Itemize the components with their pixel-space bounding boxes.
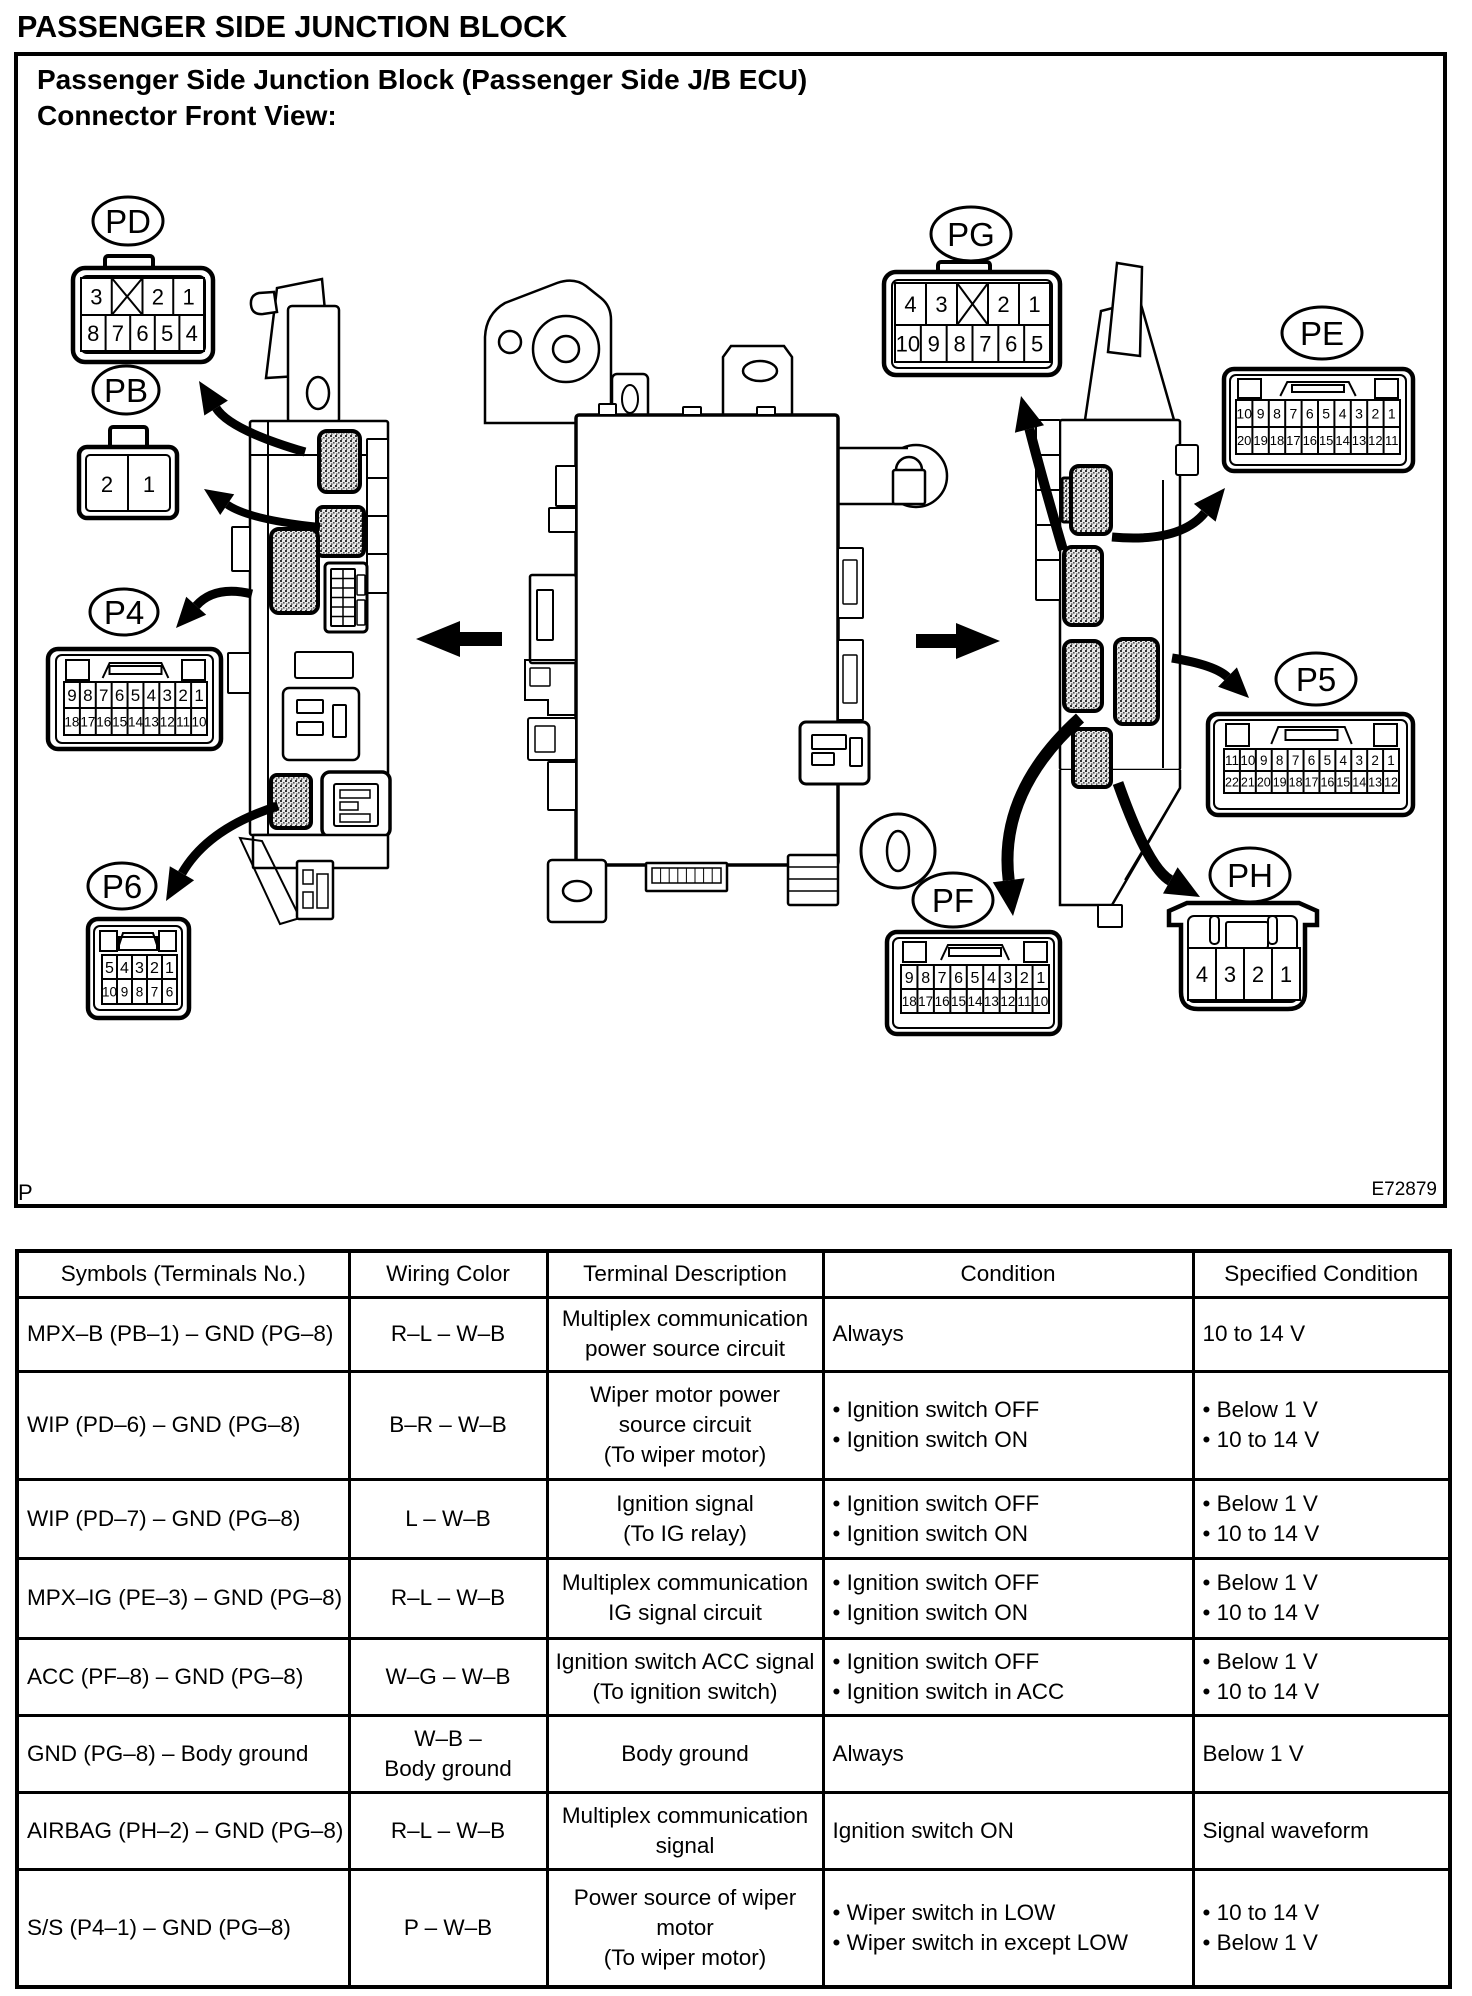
svg-text:PH: PH	[1227, 857, 1273, 894]
svg-text:2: 2	[1252, 962, 1264, 987]
svg-text:9: 9	[121, 984, 129, 999]
svg-text:8: 8	[83, 686, 92, 705]
svg-text:9: 9	[1260, 753, 1268, 768]
svg-text:6: 6	[1005, 331, 1017, 356]
svg-text:7: 7	[112, 321, 124, 346]
svg-text:19: 19	[1253, 433, 1267, 448]
svg-text:9: 9	[905, 970, 914, 987]
svg-text:6: 6	[166, 984, 174, 999]
svg-text:3: 3	[1003, 970, 1012, 987]
svg-text:8: 8	[136, 984, 144, 999]
svg-text:14: 14	[967, 994, 983, 1009]
svg-text:13: 13	[1368, 776, 1382, 790]
svg-text:6: 6	[136, 321, 148, 346]
svg-text:8: 8	[953, 331, 965, 356]
svg-text:4: 4	[1196, 962, 1208, 987]
svg-text:10: 10	[896, 331, 920, 356]
svg-text:10: 10	[1033, 994, 1048, 1009]
svg-text:21: 21	[1241, 776, 1255, 790]
svg-text:3: 3	[1224, 962, 1236, 987]
svg-text:1: 1	[165, 960, 174, 977]
svg-text:8: 8	[1276, 753, 1284, 768]
svg-text:PF: PF	[932, 882, 974, 919]
svg-text:16: 16	[1320, 776, 1334, 790]
svg-text:4: 4	[1339, 406, 1347, 422]
svg-text:19: 19	[1273, 776, 1287, 790]
svg-text:11: 11	[176, 714, 190, 729]
svg-text:6: 6	[115, 686, 124, 705]
svg-text:9: 9	[1257, 406, 1265, 422]
svg-text:3: 3	[135, 960, 144, 977]
svg-text:3: 3	[1355, 753, 1363, 768]
svg-text:1: 1	[1388, 406, 1396, 422]
svg-text:20: 20	[1237, 433, 1251, 448]
svg-text:2: 2	[1371, 753, 1379, 768]
svg-text:11: 11	[1017, 994, 1031, 1009]
svg-text:2: 2	[1372, 406, 1380, 422]
svg-text:13: 13	[144, 714, 159, 729]
svg-text:2: 2	[152, 284, 164, 309]
svg-text:2: 2	[178, 686, 187, 705]
svg-text:5: 5	[161, 321, 173, 346]
svg-text:8: 8	[87, 321, 99, 346]
svg-text:18: 18	[1289, 776, 1303, 790]
svg-text:3: 3	[163, 686, 172, 705]
svg-text:9: 9	[67, 686, 76, 705]
svg-text:5: 5	[105, 960, 114, 977]
svg-text:PG: PG	[947, 216, 995, 253]
svg-text:6: 6	[1306, 406, 1314, 422]
svg-text:3: 3	[1355, 406, 1363, 422]
svg-text:5: 5	[1324, 753, 1332, 768]
svg-text:22: 22	[1225, 776, 1239, 790]
svg-text:16: 16	[1303, 433, 1317, 448]
svg-text:4: 4	[120, 960, 129, 977]
svg-text:P5: P5	[1296, 661, 1336, 698]
svg-text:12: 12	[160, 714, 175, 729]
svg-text:17: 17	[918, 994, 933, 1009]
svg-text:16: 16	[935, 994, 950, 1009]
svg-text:14: 14	[1335, 433, 1349, 448]
svg-text:7: 7	[99, 686, 108, 705]
svg-text:1: 1	[194, 686, 203, 705]
svg-text:1: 1	[1280, 962, 1292, 987]
svg-text:2: 2	[1020, 970, 1029, 987]
svg-text:1: 1	[143, 472, 155, 497]
svg-text:18: 18	[64, 714, 79, 729]
svg-text:12: 12	[1368, 433, 1382, 448]
svg-text:14: 14	[128, 714, 144, 729]
svg-text:5: 5	[971, 970, 980, 987]
svg-text:8: 8	[921, 970, 930, 987]
svg-text:17: 17	[1286, 433, 1300, 448]
svg-text:9: 9	[928, 331, 940, 356]
svg-text:2: 2	[997, 292, 1009, 317]
svg-text:1: 1	[1028, 292, 1040, 317]
svg-text:17: 17	[80, 714, 95, 729]
svg-text:2: 2	[101, 472, 113, 497]
svg-text:4: 4	[147, 686, 156, 705]
svg-text:7: 7	[979, 331, 991, 356]
svg-text:8: 8	[1273, 406, 1281, 422]
svg-text:4: 4	[186, 321, 198, 346]
svg-text:13: 13	[1352, 433, 1366, 448]
svg-text:17: 17	[1305, 776, 1319, 790]
svg-text:4: 4	[904, 292, 916, 317]
svg-text:12: 12	[1384, 776, 1398, 790]
svg-text:5: 5	[1031, 331, 1043, 356]
svg-text:10: 10	[1240, 753, 1255, 768]
svg-text:14: 14	[1352, 776, 1366, 790]
svg-text:PB: PB	[104, 372, 148, 409]
svg-text:10: 10	[1236, 406, 1252, 422]
svg-text:10: 10	[102, 984, 117, 999]
svg-text:1: 1	[1387, 753, 1395, 768]
svg-text:2: 2	[150, 960, 159, 977]
svg-text:16: 16	[96, 714, 111, 729]
svg-text:P6: P6	[102, 868, 142, 905]
svg-text:15: 15	[1319, 433, 1333, 448]
svg-text:6: 6	[954, 970, 963, 987]
svg-text:4: 4	[987, 970, 996, 987]
svg-text:18: 18	[1270, 433, 1284, 448]
svg-text:7: 7	[1290, 406, 1298, 422]
svg-text:12: 12	[1000, 994, 1015, 1009]
svg-text:15: 15	[951, 994, 966, 1009]
svg-text:PE: PE	[1300, 315, 1344, 352]
svg-text:5: 5	[131, 686, 140, 705]
svg-text:3: 3	[935, 292, 947, 317]
svg-text:7: 7	[938, 970, 947, 987]
svg-text:6: 6	[1308, 753, 1316, 768]
svg-text:10: 10	[192, 714, 207, 729]
svg-text:PD: PD	[105, 203, 151, 240]
svg-text:20: 20	[1257, 776, 1271, 790]
svg-text:13: 13	[984, 994, 999, 1009]
svg-text:15: 15	[112, 714, 127, 729]
svg-text:11: 11	[1385, 433, 1399, 448]
svg-text:1: 1	[183, 284, 195, 309]
svg-text:P4: P4	[104, 594, 144, 631]
svg-text:3: 3	[90, 284, 102, 309]
svg-text:18: 18	[902, 994, 917, 1009]
svg-text:7: 7	[151, 984, 159, 999]
svg-text:7: 7	[1292, 753, 1300, 768]
svg-text:11: 11	[1225, 753, 1239, 768]
svg-text:15: 15	[1336, 776, 1350, 790]
svg-text:5: 5	[1322, 406, 1330, 422]
svg-text:4: 4	[1340, 753, 1348, 768]
svg-text:1: 1	[1036, 970, 1045, 987]
